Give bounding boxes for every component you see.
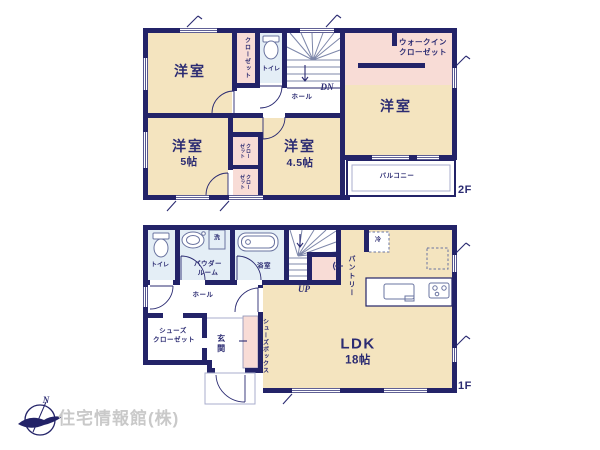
toilet-icon-2f	[263, 36, 279, 59]
label-stairs-up: UP	[298, 284, 310, 294]
label-laundry: 洗	[214, 236, 220, 243]
label-hall-1f: ホール	[193, 291, 214, 298]
label-fridge: 冷	[375, 238, 381, 245]
label-shoes-closet-line2: クローゼット	[153, 336, 195, 343]
label-room-west3-size: 5帖	[180, 156, 197, 168]
porch-outline	[205, 373, 255, 404]
label-wic-line1: ウォークイン	[399, 39, 447, 48]
label-floor1: 1F	[458, 380, 472, 393]
label-wic-line2: クローゼット	[399, 49, 447, 58]
label-closet-mid-upper: クローゼット	[239, 143, 251, 160]
wic-hanger-bar	[358, 63, 425, 68]
label-ldk: LDK	[340, 335, 375, 352]
compass-north-label: N	[43, 395, 50, 405]
label-toilet-2f: トイレ	[262, 67, 280, 74]
company-logo-text: 住宅情報館(株)	[58, 409, 179, 429]
label-shoes-box: シューズボックス	[261, 318, 268, 374]
floor-plan: 洋室 クローゼット トイレ DN ホール ウォークイン クローゼット 洋室 洋室…	[0, 0, 600, 450]
label-powder-line2: ルーム	[198, 269, 219, 276]
label-stairs-dn: DN	[321, 82, 334, 92]
label-pantry: パントリー	[347, 255, 355, 298]
label-balcony: バルコニー	[380, 172, 415, 179]
label-room-west1: 洋室	[174, 63, 206, 79]
label-closet-top: クローゼット	[243, 37, 250, 79]
label-shoes-closet-line1: シューズ	[159, 327, 187, 334]
label-floor2: 2F	[458, 184, 472, 197]
label-hall-2f: ホール	[292, 93, 313, 100]
label-powder-line1: パウダー	[194, 260, 222, 267]
floor1-base	[143, 225, 457, 398]
shoes-box-cabinet	[243, 316, 258, 368]
label-bath: 浴室	[257, 262, 271, 269]
kitchen-counter-icon	[366, 278, 452, 306]
label-entrance: 玄関	[216, 334, 225, 354]
label-room-west3: 洋室	[172, 138, 204, 154]
label-room-west4: 洋室	[284, 138, 316, 154]
label-room-west4-size: 4.5帖	[286, 157, 313, 169]
compass-icon	[18, 402, 62, 435]
bathtub-icon	[238, 233, 278, 251]
label-ldk-size: 18帖	[345, 354, 371, 367]
toilet-icon-1f	[153, 233, 169, 257]
floor-plan-graphic	[0, 0, 600, 450]
label-room-west2: 洋室	[380, 98, 412, 114]
label-toilet-1f: トイレ	[151, 263, 169, 270]
label-closet-mid-lower: クローゼット	[239, 174, 251, 191]
